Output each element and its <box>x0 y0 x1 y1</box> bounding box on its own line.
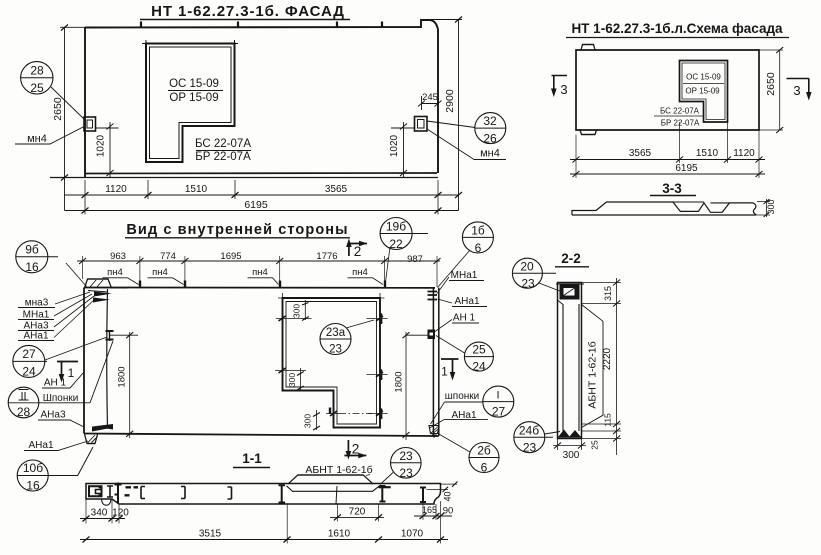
svg-text:300: 300 <box>292 304 302 318</box>
svg-text:АНа1: АНа1 <box>454 296 479 307</box>
svg-text:1-1: 1-1 <box>242 451 262 466</box>
svg-text:1610: 1610 <box>328 529 351 540</box>
svg-text:1776: 1776 <box>316 251 337 262</box>
svg-text:2: 2 <box>354 244 362 259</box>
svg-text:1020: 1020 <box>96 134 107 157</box>
svg-text:300: 300 <box>287 373 297 387</box>
svg-text:АН 1: АН 1 <box>453 313 476 324</box>
svg-text:НТ 1-62.27.3-1б.л.Схема фасада: НТ 1-62.27.3-1б.л.Схема фасада <box>571 21 783 36</box>
svg-text:23: 23 <box>521 277 535 291</box>
svg-text:I: I <box>496 390 499 402</box>
svg-text:25: 25 <box>590 440 600 450</box>
svg-text:1510: 1510 <box>185 184 208 195</box>
svg-text:3515: 3515 <box>199 529 222 540</box>
svg-text:1120: 1120 <box>105 184 127 195</box>
svg-text:28: 28 <box>30 64 44 78</box>
svg-text:1б: 1б <box>471 224 485 238</box>
svg-text:1: 1 <box>441 365 448 379</box>
svg-text:II: II <box>20 391 26 403</box>
svg-text:16: 16 <box>26 479 40 493</box>
svg-text:БС 22-07А: БС 22-07А <box>660 107 700 116</box>
svg-text:2-2: 2-2 <box>561 251 581 266</box>
svg-text:шпонки: шпонки <box>445 391 479 402</box>
svg-text:пн4: пн4 <box>107 267 123 278</box>
svg-text:2б: 2б <box>477 444 491 458</box>
svg-text:Шпонки: Шпонки <box>43 393 79 404</box>
svg-text:ОС 15-09: ОС 15-09 <box>686 73 721 82</box>
svg-text:165: 165 <box>422 505 437 515</box>
svg-text:БР 22-07А: БР 22-07А <box>195 151 251 163</box>
svg-text:16: 16 <box>25 260 39 274</box>
svg-text:1120: 1120 <box>733 148 755 159</box>
svg-text:мн4: мн4 <box>27 133 47 145</box>
svg-text:340: 340 <box>91 507 108 518</box>
svg-text:23: 23 <box>399 449 413 463</box>
svg-text:6: 6 <box>481 461 488 475</box>
svg-text:МНа1: МНа1 <box>451 270 478 281</box>
svg-text:2650: 2650 <box>52 97 64 121</box>
svg-text:120: 120 <box>112 507 129 518</box>
svg-text:300: 300 <box>303 414 313 428</box>
svg-text:9б: 9б <box>25 243 39 257</box>
svg-text:6: 6 <box>475 241 482 255</box>
svg-text:1800: 1800 <box>117 366 128 387</box>
svg-text:3565: 3565 <box>629 148 652 159</box>
svg-text:1800: 1800 <box>394 371 405 392</box>
svg-text:Вид с внутренней стороны: Вид с внутренней стороны <box>126 222 348 238</box>
svg-text:НТ 1-62.27.3-1б. ФАСАД: НТ 1-62.27.3-1б. ФАСАД <box>151 3 345 20</box>
svg-text:24б: 24б <box>519 424 539 438</box>
svg-text:24: 24 <box>472 360 486 374</box>
svg-text:2220: 2220 <box>602 347 613 370</box>
svg-text:1695: 1695 <box>220 251 241 262</box>
svg-text:1020: 1020 <box>389 134 400 157</box>
svg-text:720: 720 <box>349 507 366 518</box>
svg-text:300: 300 <box>563 450 580 461</box>
svg-text:315: 315 <box>603 286 613 301</box>
svg-text:25: 25 <box>30 81 44 95</box>
svg-text:пн4: пн4 <box>352 267 368 278</box>
svg-text:27: 27 <box>22 347 36 361</box>
svg-text:2650: 2650 <box>765 72 777 96</box>
svg-text:АБНТ 1-62-1б: АБНТ 1-62-1б <box>305 464 372 476</box>
svg-text:300: 300 <box>766 199 776 214</box>
svg-text:40: 40 <box>443 491 453 501</box>
svg-text:мн4: мн4 <box>480 148 500 160</box>
svg-text:23: 23 <box>329 344 342 356</box>
svg-text:963: 963 <box>110 251 126 262</box>
svg-text:774: 774 <box>160 251 176 262</box>
svg-text:АНа3: АНа3 <box>40 410 65 421</box>
svg-text:БС 22-07А: БС 22-07А <box>195 138 251 150</box>
svg-text:1510: 1510 <box>696 148 719 159</box>
svg-text:32: 32 <box>483 114 497 128</box>
svg-text:МНа1: МНа1 <box>23 310 50 321</box>
svg-text:23а: 23а <box>326 327 346 339</box>
svg-text:19б: 19б <box>386 220 406 234</box>
svg-text:6195: 6195 <box>675 163 698 174</box>
svg-text:115: 115 <box>603 413 613 427</box>
svg-text:10б: 10б <box>23 461 43 475</box>
svg-text:ОС 15-09: ОС 15-09 <box>169 78 219 90</box>
svg-text:26: 26 <box>483 132 497 146</box>
svg-text:24: 24 <box>22 365 36 379</box>
svg-text:27: 27 <box>492 405 506 419</box>
svg-text:мна3: мна3 <box>25 298 49 309</box>
svg-text:90: 90 <box>443 506 454 517</box>
svg-text:АНа1: АНа1 <box>23 331 48 342</box>
svg-text:2900: 2900 <box>444 89 456 113</box>
svg-text:25: 25 <box>472 343 486 357</box>
svg-text:2: 2 <box>352 442 360 457</box>
svg-text:ОР 15-09: ОР 15-09 <box>685 87 720 96</box>
svg-text:987: 987 <box>407 254 423 265</box>
svg-text:23: 23 <box>399 466 413 480</box>
svg-text:3-3: 3-3 <box>662 181 682 196</box>
svg-text:3: 3 <box>560 82 567 97</box>
svg-text:22: 22 <box>389 237 403 251</box>
svg-text:пн4: пн4 <box>152 267 168 278</box>
svg-text:АБНТ 1-62-1б: АБНТ 1-62-1б <box>587 341 599 408</box>
svg-text:ОР 15-09: ОР 15-09 <box>169 92 218 104</box>
svg-text:1: 1 <box>68 366 75 380</box>
svg-text:3565: 3565 <box>325 184 348 195</box>
svg-text:1070: 1070 <box>401 529 424 540</box>
svg-text:3: 3 <box>793 83 800 98</box>
svg-text:пн4: пн4 <box>252 267 268 278</box>
svg-text:6195: 6195 <box>244 199 268 211</box>
svg-text:20: 20 <box>520 260 534 274</box>
svg-text:23: 23 <box>523 441 537 455</box>
svg-text:28: 28 <box>17 405 31 419</box>
svg-text:БР 22-07А: БР 22-07А <box>661 119 700 128</box>
svg-text:АНа1: АНа1 <box>28 440 53 451</box>
svg-text:АН 1: АН 1 <box>44 378 67 389</box>
